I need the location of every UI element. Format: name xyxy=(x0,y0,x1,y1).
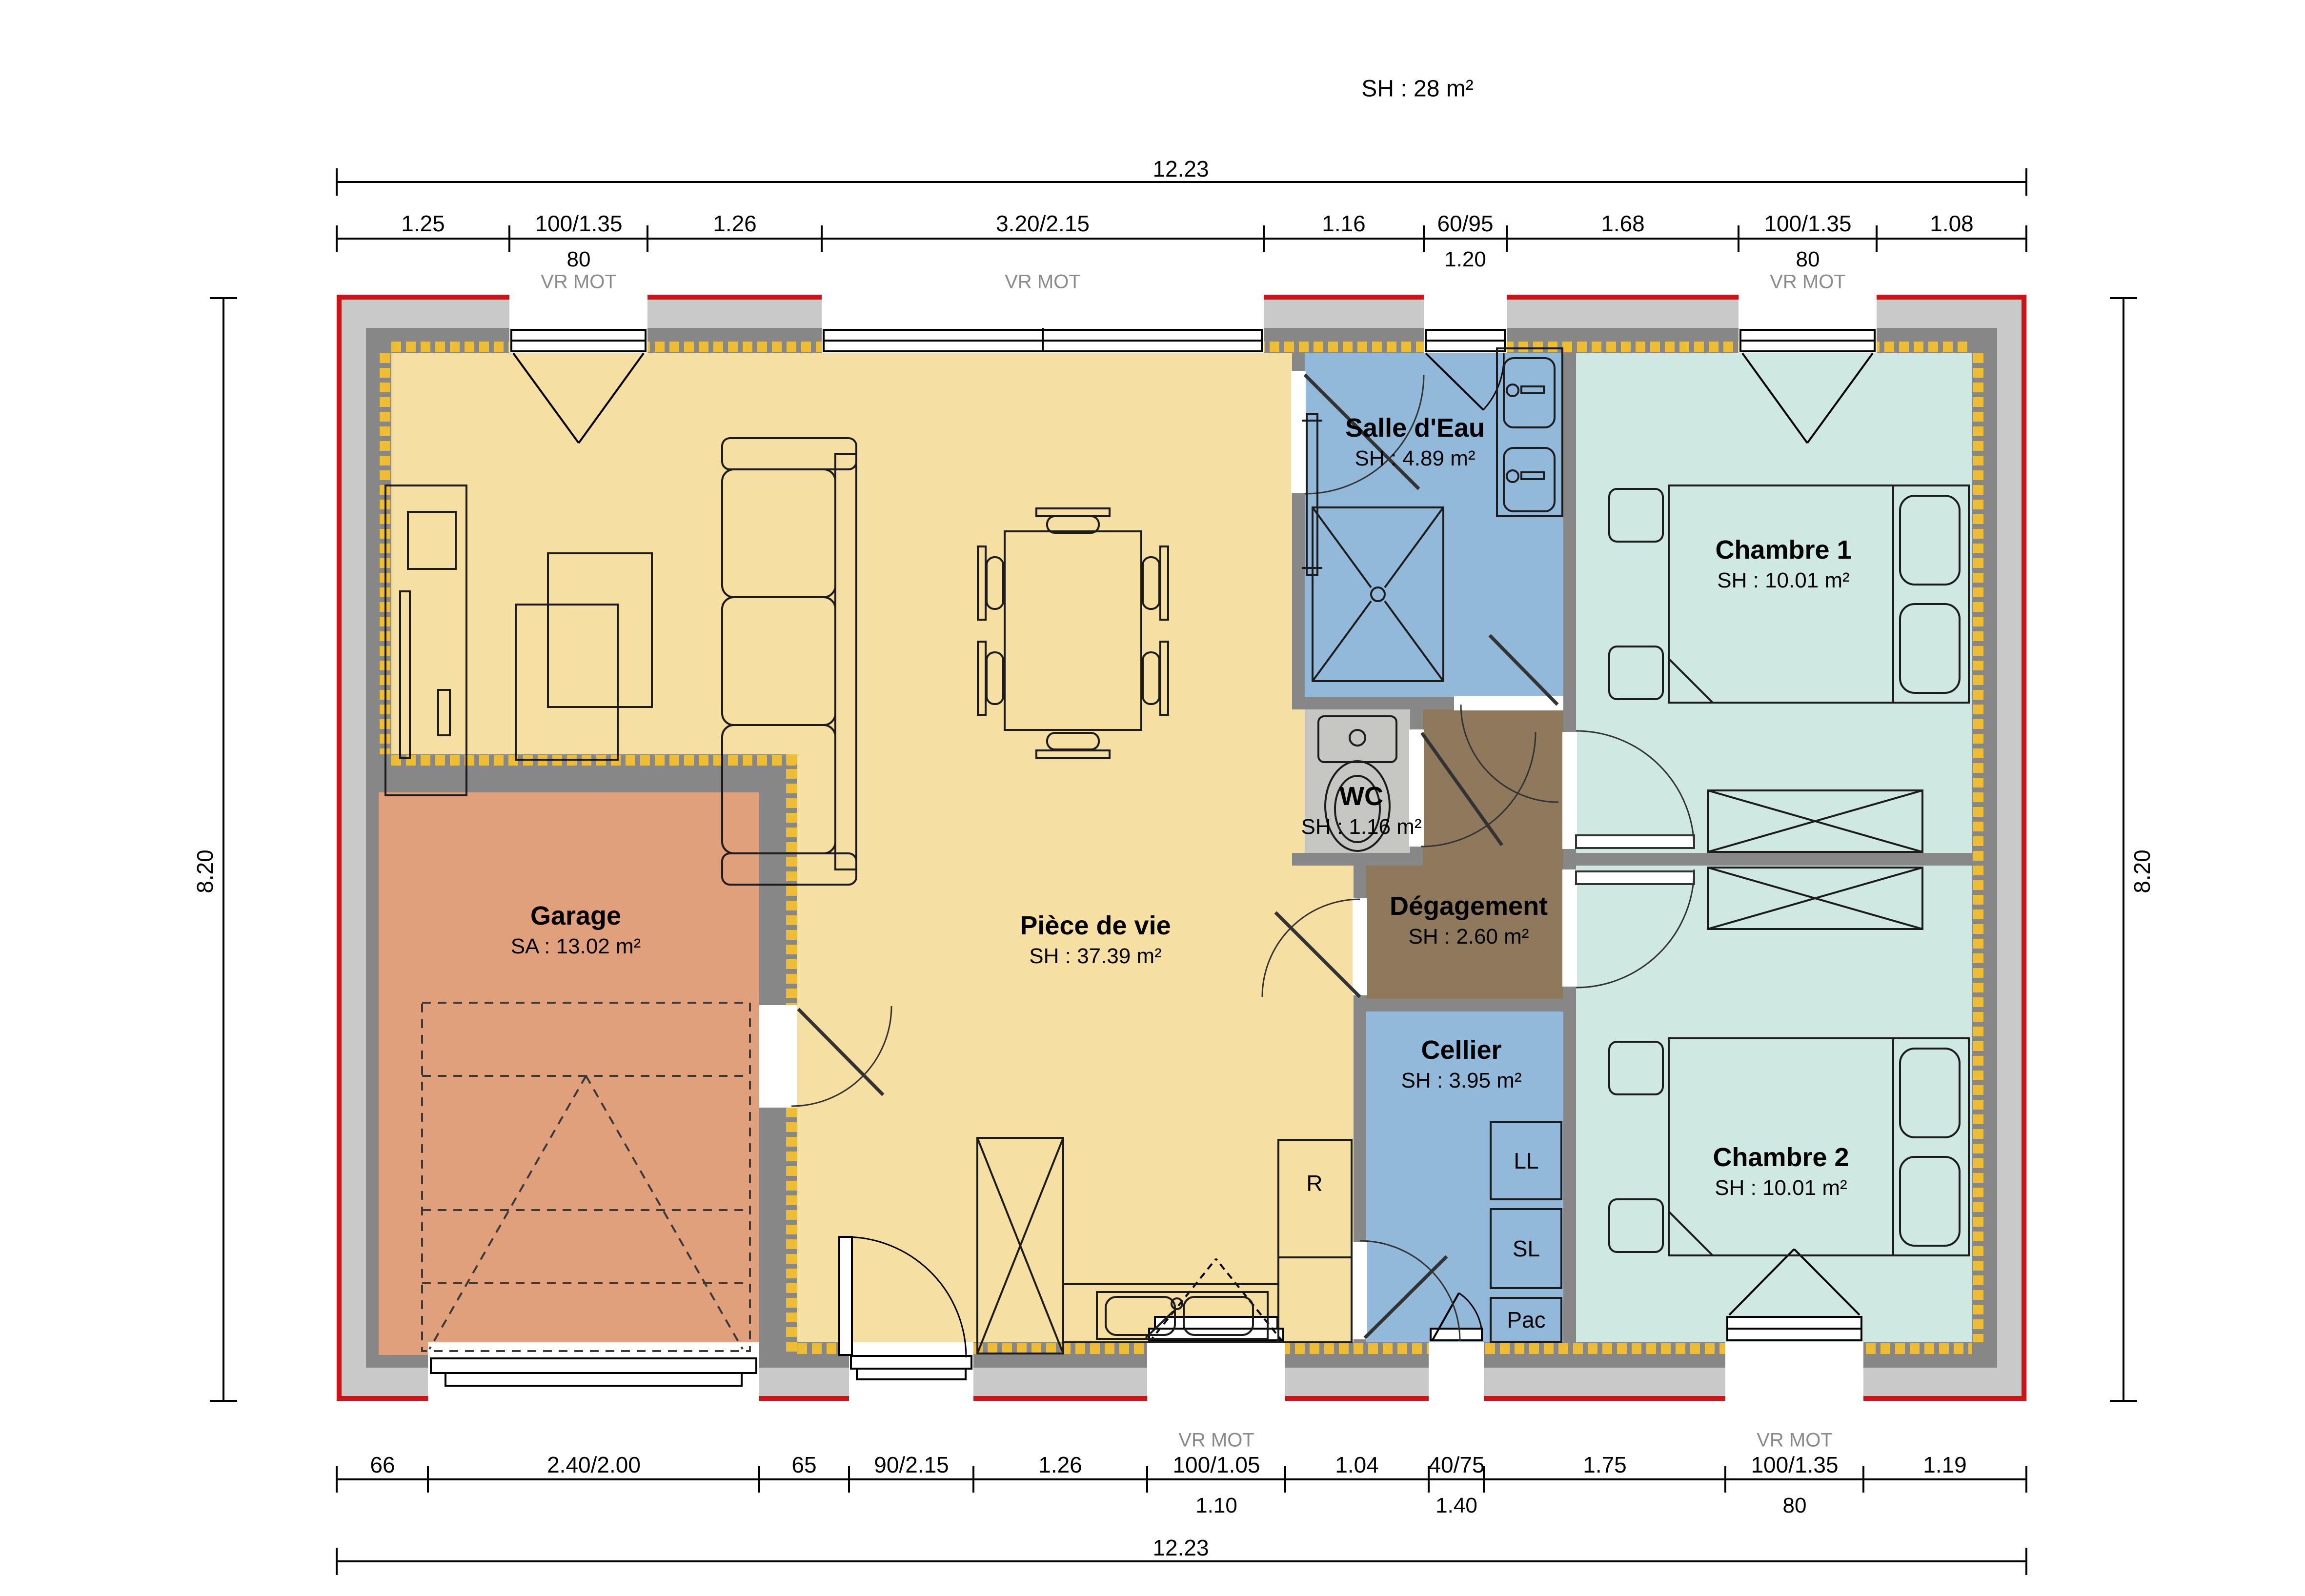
dim-top-3: 3.20/2.15 xyxy=(996,210,1090,237)
dim-bottom-1: 2.40/2.00 xyxy=(547,1452,641,1478)
dim-bottom-9-sub: 80 xyxy=(1783,1494,1807,1518)
appliance-dryer-label: SL xyxy=(1513,1235,1540,1262)
dim-top-1: 100/1.35 xyxy=(535,210,622,237)
room-name: Dégagement xyxy=(1390,890,1548,923)
floor-plan-page: SH : 28 m² Garage SA : 13.02 m² Pièce de… xyxy=(0,0,2305,1596)
appliance-washer-label: LL xyxy=(1514,1148,1538,1174)
dim-top-6: 1.68 xyxy=(1601,210,1645,237)
room-chambre1-fill xyxy=(1576,353,1972,853)
room-name: Cellier xyxy=(1401,1034,1522,1067)
dim-bottom-10: 1.19 xyxy=(1923,1452,1967,1478)
dim-bottom-9-note: VR MOT xyxy=(1757,1430,1833,1452)
dim-bottom-5-note: VR MOT xyxy=(1178,1430,1254,1452)
room-area: SH : 4.89 m² xyxy=(1345,444,1485,471)
dim-bottom-2: 65 xyxy=(791,1452,816,1478)
dim-top-3-note: VR MOT xyxy=(1005,271,1081,293)
dim-top-5: 60/95 xyxy=(1437,210,1493,237)
dim-bottom-3: 90/2.15 xyxy=(874,1452,949,1478)
dim-bottom-9: 100/1.35 xyxy=(1751,1452,1838,1478)
plan-title: SH : 28 m² xyxy=(1361,76,1473,102)
room-label-piece-de-vie: Pièce de vie SH : 37.39 m² xyxy=(1020,909,1171,970)
dim-bottom-4: 1.26 xyxy=(1038,1452,1082,1478)
dim-top-7-note: VR MOT xyxy=(1770,271,1846,293)
dim-side-left: 8.20 xyxy=(192,849,218,893)
garage-door-icon xyxy=(431,1358,756,1386)
dim-top-8: 1.08 xyxy=(1930,210,1974,237)
dim-side-right: 8.20 xyxy=(2129,849,2155,893)
room-label-chambre1: Chambre 1 SH : 10.01 m² xyxy=(1715,534,1851,594)
dim-bottom-7: 40/75 xyxy=(1428,1452,1484,1478)
window-bay-icon xyxy=(824,328,1262,352)
dim-top-7-sub: 80 xyxy=(1796,247,1820,272)
room-area: SH : 10.01 m² xyxy=(1715,566,1851,593)
room-area: SH : 10.01 m² xyxy=(1713,1174,1849,1201)
room-garage-fill xyxy=(379,792,759,1355)
room-label-cellier: Cellier SH : 3.95 m² xyxy=(1401,1034,1522,1094)
dim-top-0: 1.25 xyxy=(401,210,445,237)
room-area: SH : 1.16 m² xyxy=(1301,813,1422,840)
room-area: SH : 3.95 m² xyxy=(1401,1067,1522,1093)
dim-top-1-sub: 80 xyxy=(567,247,591,272)
dim-top-1-note: VR MOT xyxy=(541,271,617,293)
dim-total-top: 12.23 xyxy=(1152,156,1209,182)
room-area: SH : 37.39 m² xyxy=(1020,942,1171,969)
dim-bottom-7-sub: 1.40 xyxy=(1436,1494,1477,1518)
dim-top-5-sub: 1.20 xyxy=(1444,247,1486,272)
dim-top-2: 1.26 xyxy=(713,210,757,237)
dim-total-bottom: 12.23 xyxy=(1152,1535,1209,1561)
room-area: SH : 2.60 m² xyxy=(1390,923,1548,950)
room-area: SA : 13.02 m² xyxy=(511,932,641,959)
dim-bottom-0: 66 xyxy=(370,1452,395,1478)
dim-top-4: 1.16 xyxy=(1322,210,1366,237)
room-name: Garage xyxy=(511,900,641,933)
room-name: WC xyxy=(1301,780,1422,813)
dim-bottom-8: 1.75 xyxy=(1583,1452,1627,1478)
room-label-degagement: Dégagement SH : 2.60 m² xyxy=(1390,890,1548,950)
room-label-chambre2: Chambre 2 SH : 10.01 m² xyxy=(1713,1141,1849,1201)
room-name: Chambre 1 xyxy=(1715,534,1851,567)
room-name: Pièce de vie xyxy=(1020,909,1171,943)
room-salle-deau-fill xyxy=(1305,353,1563,697)
room-label-salle-deau: Salle d'Eau SH : 4.89 m² xyxy=(1345,412,1485,472)
appliance-fridge-label: R xyxy=(1306,1170,1322,1196)
room-label-garage: Garage SA : 13.02 m² xyxy=(511,900,641,960)
room-name: Salle d'Eau xyxy=(1345,412,1485,445)
room-label-wc: WC SH : 1.16 m² xyxy=(1301,780,1422,840)
dim-bottom-6: 1.04 xyxy=(1335,1452,1379,1478)
room-name: Chambre 2 xyxy=(1713,1141,1849,1174)
floor-plan-drawing xyxy=(0,0,2305,1596)
appliance-heatpump-label: Pac xyxy=(1507,1307,1545,1333)
dim-bottom-5-sub: 1.10 xyxy=(1195,1494,1237,1518)
dim-bottom-5: 100/1.05 xyxy=(1173,1452,1260,1478)
dim-top-7: 100/1.35 xyxy=(1764,210,1851,237)
